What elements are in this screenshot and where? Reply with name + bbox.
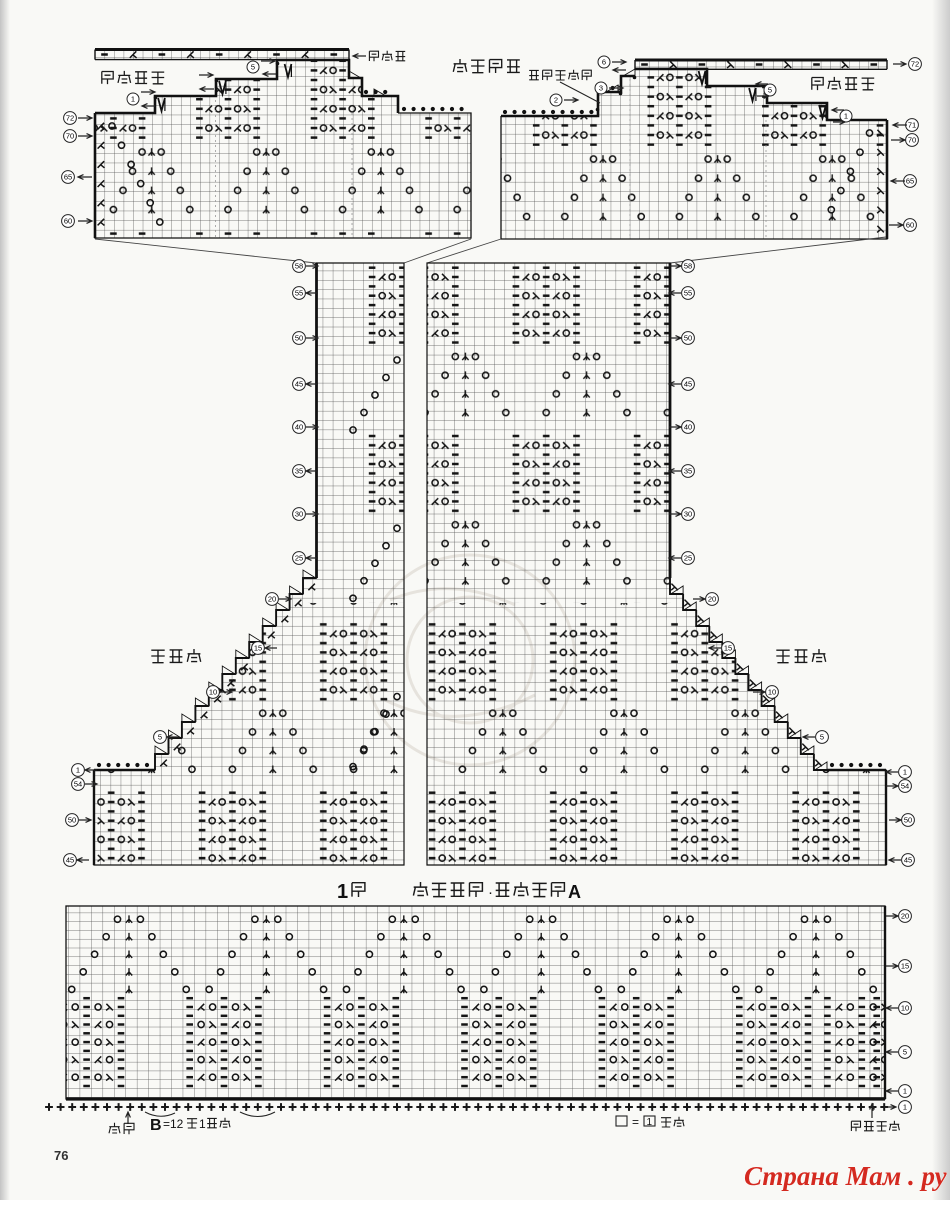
svg-text:5: 5 — [768, 86, 772, 95]
svg-text:20: 20 — [268, 595, 276, 604]
svg-text:65: 65 — [906, 177, 914, 186]
svg-text:·: · — [488, 884, 493, 901]
svg-text:50: 50 — [904, 816, 912, 825]
svg-text:45: 45 — [66, 856, 74, 865]
svg-text:1: 1 — [844, 112, 848, 121]
svg-text:58: 58 — [684, 262, 692, 271]
svg-text:2: 2 — [554, 96, 558, 105]
svg-text:25: 25 — [295, 554, 303, 563]
svg-text:3: 3 — [599, 84, 603, 93]
svg-text:70: 70 — [66, 132, 74, 141]
svg-text:45: 45 — [684, 380, 692, 389]
svg-text:B: B — [150, 1117, 162, 1134]
svg-text:1: 1 — [903, 768, 907, 777]
svg-text:A: A — [568, 882, 581, 902]
svg-text:6: 6 — [602, 58, 606, 67]
svg-text:5: 5 — [903, 1048, 907, 1057]
svg-text:1: 1 — [199, 1117, 206, 1131]
svg-text:1: 1 — [131, 95, 135, 104]
svg-text:40: 40 — [684, 423, 692, 432]
svg-text:=: = — [632, 1115, 639, 1129]
svg-text:5: 5 — [251, 63, 255, 72]
svg-text:1: 1 — [903, 1103, 907, 1112]
svg-text:15: 15 — [724, 644, 732, 653]
svg-text:35: 35 — [295, 467, 303, 476]
svg-text:1: 1 — [76, 766, 80, 775]
svg-text:30: 30 — [684, 510, 692, 519]
svg-text:71: 71 — [908, 121, 916, 130]
svg-text:20: 20 — [901, 912, 909, 921]
svg-text:30: 30 — [295, 510, 303, 519]
svg-text:65: 65 — [64, 173, 72, 182]
svg-text:60: 60 — [906, 221, 914, 230]
svg-text:15: 15 — [254, 644, 262, 653]
svg-text:25: 25 — [684, 554, 692, 563]
svg-text:58: 58 — [295, 262, 303, 271]
svg-text:1: 1 — [337, 881, 348, 903]
svg-text:5: 5 — [820, 733, 824, 742]
svg-text:1: 1 — [903, 1087, 907, 1096]
svg-text:54: 54 — [901, 782, 909, 791]
svg-text:50: 50 — [684, 334, 692, 343]
svg-text:45: 45 — [295, 380, 303, 389]
svg-text:50: 50 — [68, 816, 76, 825]
svg-text:Страна Мам . ру: Страна Мам . ру — [744, 1161, 948, 1191]
svg-text:55: 55 — [684, 289, 692, 298]
svg-text:1: 1 — [647, 1117, 653, 1128]
svg-text:55: 55 — [295, 289, 303, 298]
svg-text:20: 20 — [708, 595, 716, 604]
svg-text:54: 54 — [74, 780, 82, 789]
svg-text:40: 40 — [295, 423, 303, 432]
svg-text:45: 45 — [904, 856, 912, 865]
svg-text:10: 10 — [768, 688, 776, 697]
svg-text:72: 72 — [66, 114, 74, 123]
svg-text:70: 70 — [908, 136, 916, 145]
svg-text:76: 76 — [54, 1148, 68, 1163]
svg-text:10: 10 — [901, 1004, 909, 1013]
svg-text:=12: =12 — [163, 1117, 184, 1131]
svg-text:72: 72 — [911, 60, 919, 69]
svg-text:35: 35 — [684, 467, 692, 476]
svg-text:60: 60 — [64, 217, 72, 226]
svg-text:15: 15 — [901, 962, 909, 971]
svg-text:5: 5 — [158, 733, 162, 742]
svg-text:50: 50 — [295, 334, 303, 343]
svg-text:10: 10 — [209, 688, 217, 697]
